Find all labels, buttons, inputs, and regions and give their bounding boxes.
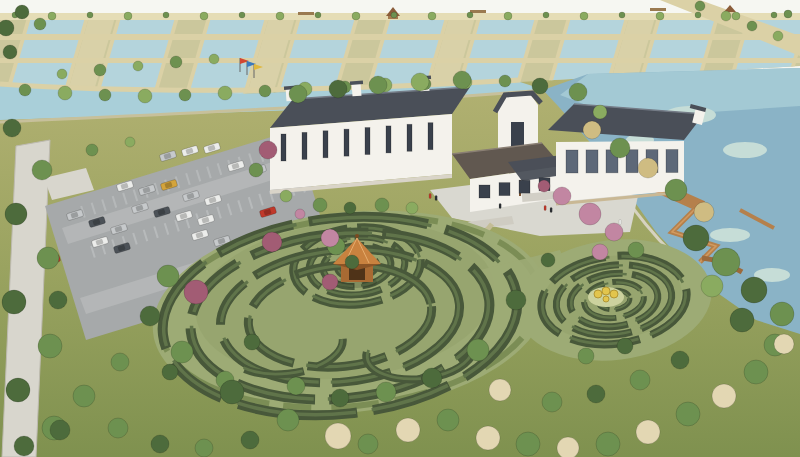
tree bbox=[179, 89, 191, 101]
tree bbox=[453, 71, 471, 89]
tree bbox=[411, 73, 429, 91]
tree bbox=[58, 86, 72, 100]
tree bbox=[506, 290, 526, 310]
tree bbox=[313, 198, 327, 212]
tree bbox=[259, 85, 271, 97]
window bbox=[281, 134, 286, 161]
tree bbox=[376, 382, 396, 402]
window bbox=[407, 124, 412, 151]
tree bbox=[163, 12, 169, 18]
tree bbox=[580, 12, 588, 20]
tree bbox=[94, 64, 106, 76]
tree bbox=[99, 89, 111, 101]
tree bbox=[32, 160, 52, 180]
tree bbox=[375, 198, 389, 212]
tree bbox=[289, 85, 307, 103]
window bbox=[365, 128, 370, 155]
tree bbox=[111, 353, 129, 371]
tree bbox=[195, 439, 213, 457]
tree bbox=[249, 163, 263, 177]
yellow-figure bbox=[603, 296, 609, 302]
tree bbox=[593, 105, 607, 119]
window bbox=[344, 129, 349, 156]
grid-cross-path bbox=[0, 58, 800, 63]
tree bbox=[676, 402, 700, 426]
tree bbox=[57, 69, 67, 79]
tree bbox=[49, 291, 67, 309]
tree bbox=[124, 12, 132, 20]
tree bbox=[543, 12, 549, 18]
tree bbox=[541, 253, 555, 267]
tree bbox=[3, 119, 21, 137]
tree bbox=[19, 84, 31, 96]
tree bbox=[671, 351, 689, 369]
tree bbox=[352, 12, 360, 20]
tree bbox=[422, 368, 442, 388]
tree bbox=[140, 306, 160, 326]
tree bbox=[87, 12, 93, 18]
grid-cross-path bbox=[0, 34, 800, 40]
tree bbox=[2, 290, 26, 314]
tree bbox=[391, 12, 397, 18]
tree bbox=[747, 21, 757, 31]
person bbox=[435, 196, 437, 201]
person bbox=[544, 206, 546, 211]
window bbox=[586, 150, 598, 173]
tree bbox=[162, 364, 178, 380]
tree bbox=[771, 12, 777, 18]
tree bbox=[37, 247, 59, 269]
tree bbox=[638, 158, 658, 178]
tree bbox=[467, 339, 489, 361]
tree bbox=[701, 275, 723, 297]
tree bbox=[358, 434, 378, 454]
yellow-figure bbox=[610, 290, 618, 298]
tree bbox=[557, 437, 579, 457]
tree bbox=[220, 380, 244, 404]
lily-patch bbox=[710, 228, 750, 242]
tree bbox=[437, 409, 459, 431]
tree bbox=[569, 83, 587, 101]
window bbox=[499, 183, 510, 196]
tree bbox=[184, 280, 208, 304]
tree bbox=[244, 334, 260, 350]
tree bbox=[133, 61, 143, 71]
yellow-figure bbox=[594, 290, 602, 298]
tree bbox=[770, 302, 794, 326]
tree bbox=[48, 12, 56, 20]
lily-patch bbox=[723, 142, 767, 158]
tree bbox=[683, 225, 709, 251]
tree bbox=[636, 420, 660, 444]
tree bbox=[428, 12, 436, 20]
tree bbox=[665, 179, 687, 201]
tree bbox=[553, 187, 571, 205]
tree bbox=[712, 248, 740, 276]
tree bbox=[262, 232, 282, 252]
gazebo-finial bbox=[355, 234, 359, 238]
tree bbox=[712, 384, 736, 408]
tree bbox=[277, 409, 299, 431]
tree bbox=[200, 12, 208, 20]
tree bbox=[218, 86, 232, 100]
tree bbox=[344, 202, 356, 214]
tree bbox=[34, 18, 46, 30]
tree bbox=[516, 432, 540, 456]
person bbox=[499, 204, 501, 209]
tree bbox=[209, 54, 219, 64]
tree bbox=[504, 12, 512, 20]
tree bbox=[170, 56, 182, 68]
window bbox=[323, 131, 328, 158]
tree bbox=[721, 11, 731, 21]
aerial-site-rendering bbox=[0, 0, 800, 457]
tree bbox=[695, 1, 705, 11]
tree bbox=[578, 348, 594, 364]
tree bbox=[656, 12, 664, 20]
tree bbox=[406, 202, 418, 214]
tree bbox=[476, 426, 500, 450]
person bbox=[550, 208, 552, 213]
tree bbox=[276, 12, 284, 20]
tree bbox=[259, 141, 277, 159]
tree bbox=[171, 341, 193, 363]
window bbox=[519, 180, 530, 193]
tree bbox=[774, 334, 794, 354]
tree bbox=[579, 203, 601, 225]
person bbox=[429, 194, 431, 199]
rendering-canvas bbox=[0, 0, 800, 457]
tree bbox=[315, 12, 321, 18]
tree bbox=[5, 203, 27, 225]
tree bbox=[542, 392, 562, 412]
tree bbox=[241, 431, 259, 449]
tree bbox=[499, 75, 511, 87]
tree bbox=[741, 277, 767, 303]
tree bbox=[125, 137, 135, 147]
tree bbox=[532, 78, 548, 94]
tree bbox=[331, 389, 349, 407]
tree bbox=[345, 255, 359, 269]
window bbox=[428, 123, 433, 150]
tree bbox=[239, 12, 245, 18]
tree bbox=[773, 31, 783, 41]
tree bbox=[38, 334, 62, 358]
tree bbox=[157, 265, 179, 287]
tree bbox=[744, 360, 768, 384]
tree bbox=[732, 12, 740, 20]
pergola bbox=[298, 12, 314, 15]
tree bbox=[605, 223, 623, 241]
tree bbox=[321, 229, 339, 247]
tree bbox=[325, 423, 351, 449]
tree bbox=[151, 435, 169, 453]
tree bbox=[108, 418, 128, 438]
window bbox=[386, 126, 391, 153]
tree bbox=[730, 308, 754, 332]
tree bbox=[784, 10, 792, 18]
yellow-figure bbox=[602, 287, 610, 295]
tree bbox=[14, 436, 34, 456]
window bbox=[566, 150, 578, 173]
tree bbox=[322, 274, 338, 290]
tree bbox=[396, 418, 420, 442]
top-walkway bbox=[0, 13, 800, 20]
tree bbox=[619, 12, 625, 18]
tree bbox=[138, 89, 152, 103]
tree bbox=[628, 242, 644, 258]
tree bbox=[617, 338, 633, 354]
tree bbox=[630, 370, 650, 390]
tree bbox=[329, 80, 347, 98]
window bbox=[302, 132, 307, 159]
tree bbox=[583, 121, 601, 139]
tree bbox=[489, 379, 511, 401]
tree bbox=[587, 385, 605, 403]
tree bbox=[295, 209, 305, 219]
tree bbox=[538, 180, 550, 192]
window bbox=[666, 150, 678, 173]
tree bbox=[694, 202, 714, 222]
tree bbox=[0, 20, 14, 36]
tree bbox=[50, 420, 70, 440]
tree bbox=[6, 378, 30, 402]
tree bbox=[280, 190, 292, 202]
window bbox=[479, 185, 490, 198]
tree bbox=[15, 5, 29, 19]
tree bbox=[86, 144, 98, 156]
tree bbox=[467, 12, 473, 18]
tree bbox=[369, 76, 387, 94]
tree bbox=[596, 432, 620, 456]
tree bbox=[695, 12, 701, 18]
person bbox=[619, 220, 621, 225]
tree bbox=[3, 45, 17, 59]
tree bbox=[287, 377, 305, 395]
tree bbox=[592, 244, 608, 260]
tree bbox=[610, 138, 630, 158]
pergola bbox=[650, 8, 666, 11]
tree bbox=[73, 385, 95, 407]
